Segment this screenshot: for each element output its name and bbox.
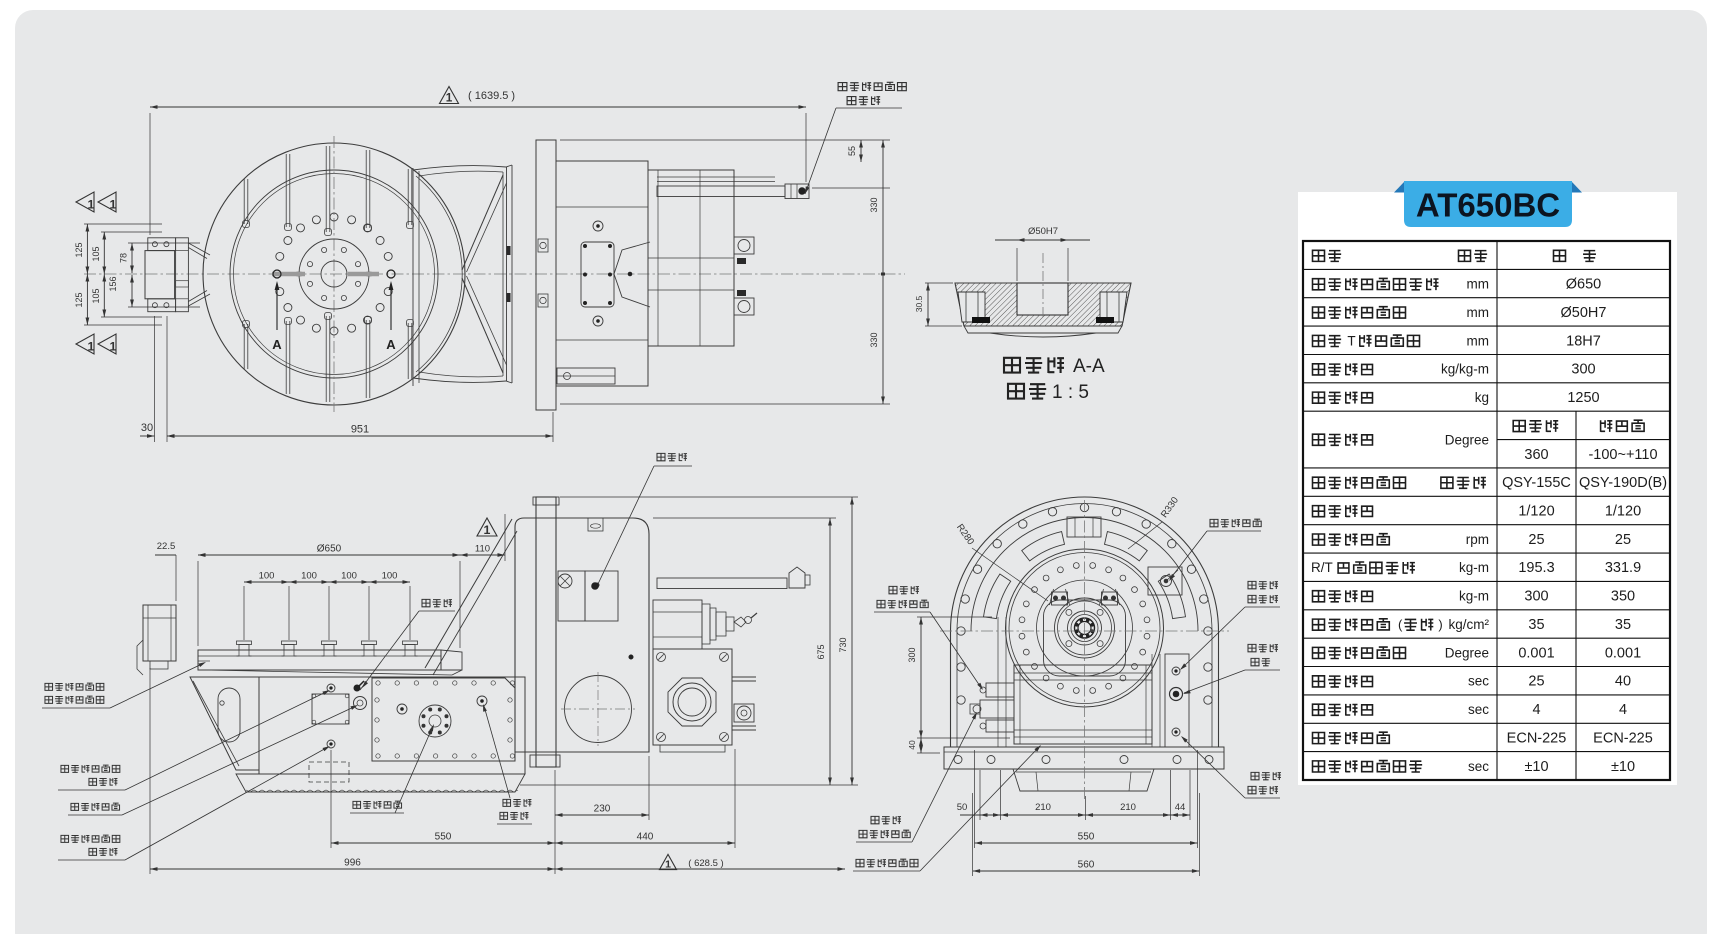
svg-text:Degree: Degree bbox=[1445, 645, 1489, 660]
svg-text:951: 951 bbox=[351, 424, 369, 436]
svg-text:300: 300 bbox=[907, 647, 917, 662]
svg-text:125: 125 bbox=[74, 292, 84, 307]
svg-text:100: 100 bbox=[301, 571, 317, 582]
svg-text:360: 360 bbox=[1524, 447, 1548, 463]
svg-text:rpm: rpm bbox=[1466, 532, 1489, 547]
svg-text:1: 1 bbox=[88, 197, 95, 211]
svg-text:±10: ±10 bbox=[1611, 759, 1635, 775]
svg-text:T: T bbox=[1347, 333, 1355, 348]
svg-text:Ø650: Ø650 bbox=[1566, 277, 1601, 293]
svg-text:sec: sec bbox=[1468, 759, 1489, 774]
svg-text:675: 675 bbox=[816, 644, 826, 659]
svg-text:55: 55 bbox=[847, 146, 857, 156]
svg-text:sec: sec bbox=[1468, 702, 1489, 717]
svg-text:330: 330 bbox=[869, 197, 879, 212]
svg-text:( 1639.5 ): ( 1639.5 ) bbox=[468, 90, 515, 102]
svg-text:A-A: A-A bbox=[1073, 356, 1105, 377]
svg-text:4: 4 bbox=[1532, 702, 1540, 718]
svg-text:40: 40 bbox=[1615, 674, 1631, 690]
svg-text:(: ( bbox=[1398, 617, 1403, 632]
svg-text:100: 100 bbox=[382, 571, 398, 582]
svg-text:560: 560 bbox=[1078, 860, 1095, 871]
svg-text:1: 1 bbox=[446, 92, 453, 105]
svg-text:0.001: 0.001 bbox=[1518, 645, 1554, 661]
svg-text:50: 50 bbox=[957, 802, 968, 813]
svg-text:1/120: 1/120 bbox=[1605, 504, 1641, 520]
svg-text:440: 440 bbox=[637, 832, 654, 843]
svg-text:44: 44 bbox=[1175, 802, 1186, 813]
svg-text:331.9: 331.9 bbox=[1605, 560, 1641, 576]
svg-text:R/T: R/T bbox=[1311, 560, 1333, 575]
svg-text:A: A bbox=[272, 337, 282, 352]
svg-text:1: 1 bbox=[110, 197, 117, 211]
svg-text:±10: ±10 bbox=[1524, 759, 1548, 775]
svg-text:18H7: 18H7 bbox=[1566, 333, 1601, 349]
svg-text:210: 210 bbox=[1120, 802, 1136, 813]
svg-text:300: 300 bbox=[1571, 362, 1595, 378]
svg-text:-100~+110: -100~+110 bbox=[1588, 447, 1657, 463]
svg-text:30.5: 30.5 bbox=[914, 295, 924, 312]
svg-text:kg/cm²: kg/cm² bbox=[1449, 617, 1490, 632]
svg-text:ECN-225: ECN-225 bbox=[1507, 730, 1567, 746]
svg-text:105: 105 bbox=[91, 246, 101, 261]
svg-text:550: 550 bbox=[435, 832, 452, 843]
svg-text:110: 110 bbox=[475, 544, 490, 555]
svg-text:35: 35 bbox=[1528, 617, 1544, 633]
svg-text:230: 230 bbox=[594, 804, 611, 815]
svg-text:Ø50H7: Ø50H7 bbox=[1561, 305, 1607, 321]
svg-text:1: 1 bbox=[88, 339, 95, 353]
svg-text:QSY-155C: QSY-155C bbox=[1502, 475, 1571, 491]
svg-text:40: 40 bbox=[907, 740, 917, 750]
svg-text:AT650BC: AT650BC bbox=[1416, 187, 1560, 224]
svg-text:1 : 5: 1 : 5 bbox=[1052, 382, 1089, 403]
svg-text:350: 350 bbox=[1611, 589, 1635, 605]
svg-text:100: 100 bbox=[259, 571, 275, 582]
svg-text:100: 100 bbox=[341, 571, 357, 582]
svg-text:mm: mm bbox=[1467, 333, 1490, 348]
svg-text:730: 730 bbox=[838, 637, 848, 652]
svg-text:996: 996 bbox=[344, 858, 361, 869]
svg-text:195.3: 195.3 bbox=[1518, 560, 1554, 576]
svg-text:30: 30 bbox=[141, 422, 153, 434]
svg-text:125: 125 bbox=[74, 242, 84, 257]
svg-text:1250: 1250 bbox=[1567, 390, 1599, 406]
svg-text:156: 156 bbox=[108, 276, 118, 291]
svg-text:25: 25 bbox=[1615, 532, 1631, 548]
svg-text:25: 25 bbox=[1528, 674, 1544, 690]
svg-text:sec: sec bbox=[1468, 674, 1489, 689]
svg-text:Ø50H7: Ø50H7 bbox=[1028, 226, 1058, 237]
svg-text:1: 1 bbox=[484, 523, 491, 537]
svg-text:kg-m: kg-m bbox=[1459, 589, 1489, 604]
svg-text:1/120: 1/120 bbox=[1518, 504, 1554, 520]
svg-text:1: 1 bbox=[665, 859, 671, 871]
svg-text:kg/kg-m: kg/kg-m bbox=[1441, 362, 1489, 377]
svg-text:( 628.5 ): ( 628.5 ) bbox=[688, 858, 723, 869]
svg-text:4: 4 bbox=[1619, 702, 1627, 718]
svg-text:25: 25 bbox=[1528, 532, 1544, 548]
svg-text:Ø650: Ø650 bbox=[317, 544, 342, 555]
svg-text:300: 300 bbox=[1524, 589, 1548, 605]
svg-text:0.001: 0.001 bbox=[1605, 645, 1641, 661]
svg-text:22.5: 22.5 bbox=[157, 541, 176, 552]
svg-text:550: 550 bbox=[1078, 832, 1095, 843]
svg-text:35: 35 bbox=[1615, 617, 1631, 633]
svg-text:mm: mm bbox=[1467, 277, 1490, 292]
svg-text:kg: kg bbox=[1475, 390, 1489, 405]
svg-text:ECN-225: ECN-225 bbox=[1593, 730, 1653, 746]
svg-text:A: A bbox=[386, 337, 396, 352]
svg-text:QSY-190D(B): QSY-190D(B) bbox=[1579, 475, 1667, 491]
svg-text:210: 210 bbox=[1035, 802, 1051, 813]
svg-text:Degree: Degree bbox=[1445, 433, 1489, 448]
svg-text:78: 78 bbox=[119, 253, 129, 263]
svg-text:kg-m: kg-m bbox=[1459, 560, 1489, 575]
svg-text:105: 105 bbox=[91, 288, 101, 303]
svg-text:330: 330 bbox=[869, 332, 879, 347]
svg-text:1: 1 bbox=[110, 339, 117, 353]
svg-text:): ) bbox=[1438, 617, 1442, 632]
svg-text:mm: mm bbox=[1467, 305, 1490, 320]
